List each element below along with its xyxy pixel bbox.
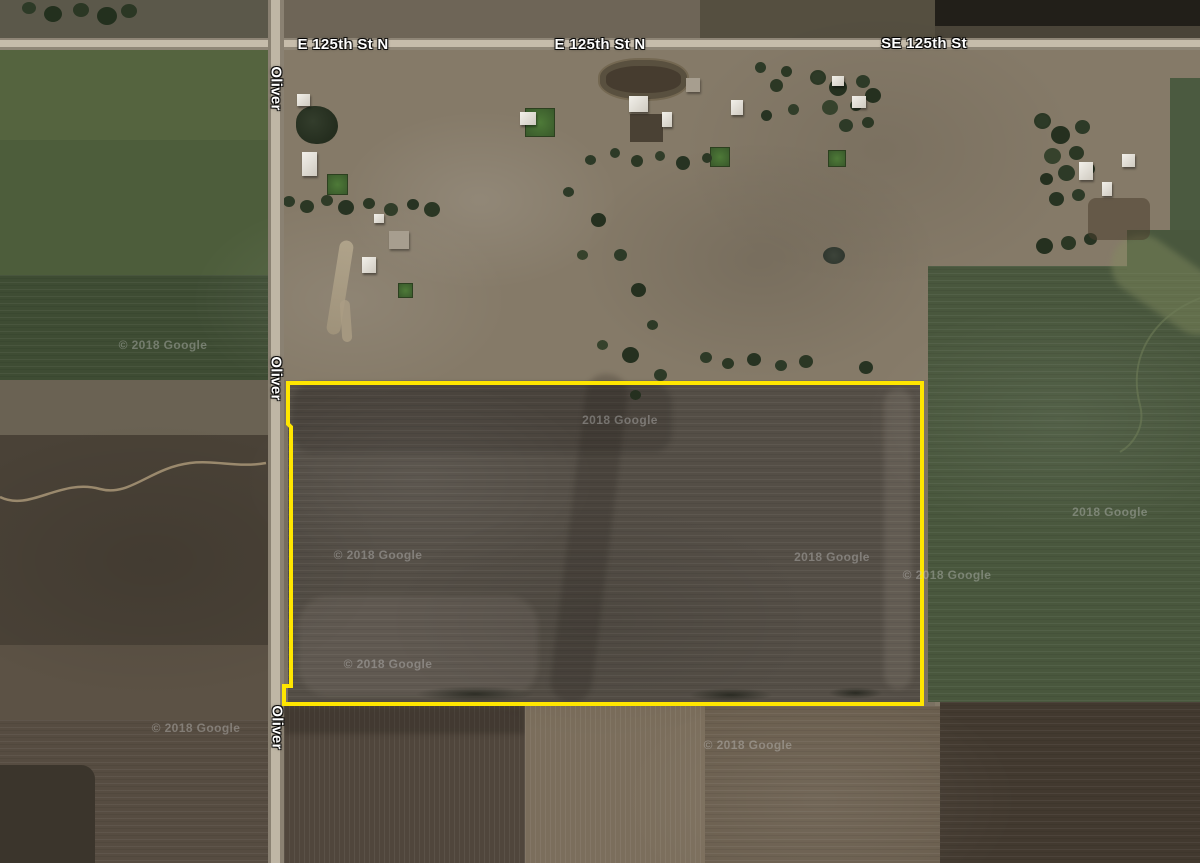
satellite-map-canvas[interactable]: © 2018 Google 2018 Google © 2018 Google … <box>0 0 1200 863</box>
road-layer <box>0 0 1200 863</box>
road-oliver <box>268 0 284 863</box>
road-e-125th-st <box>0 38 1200 50</box>
